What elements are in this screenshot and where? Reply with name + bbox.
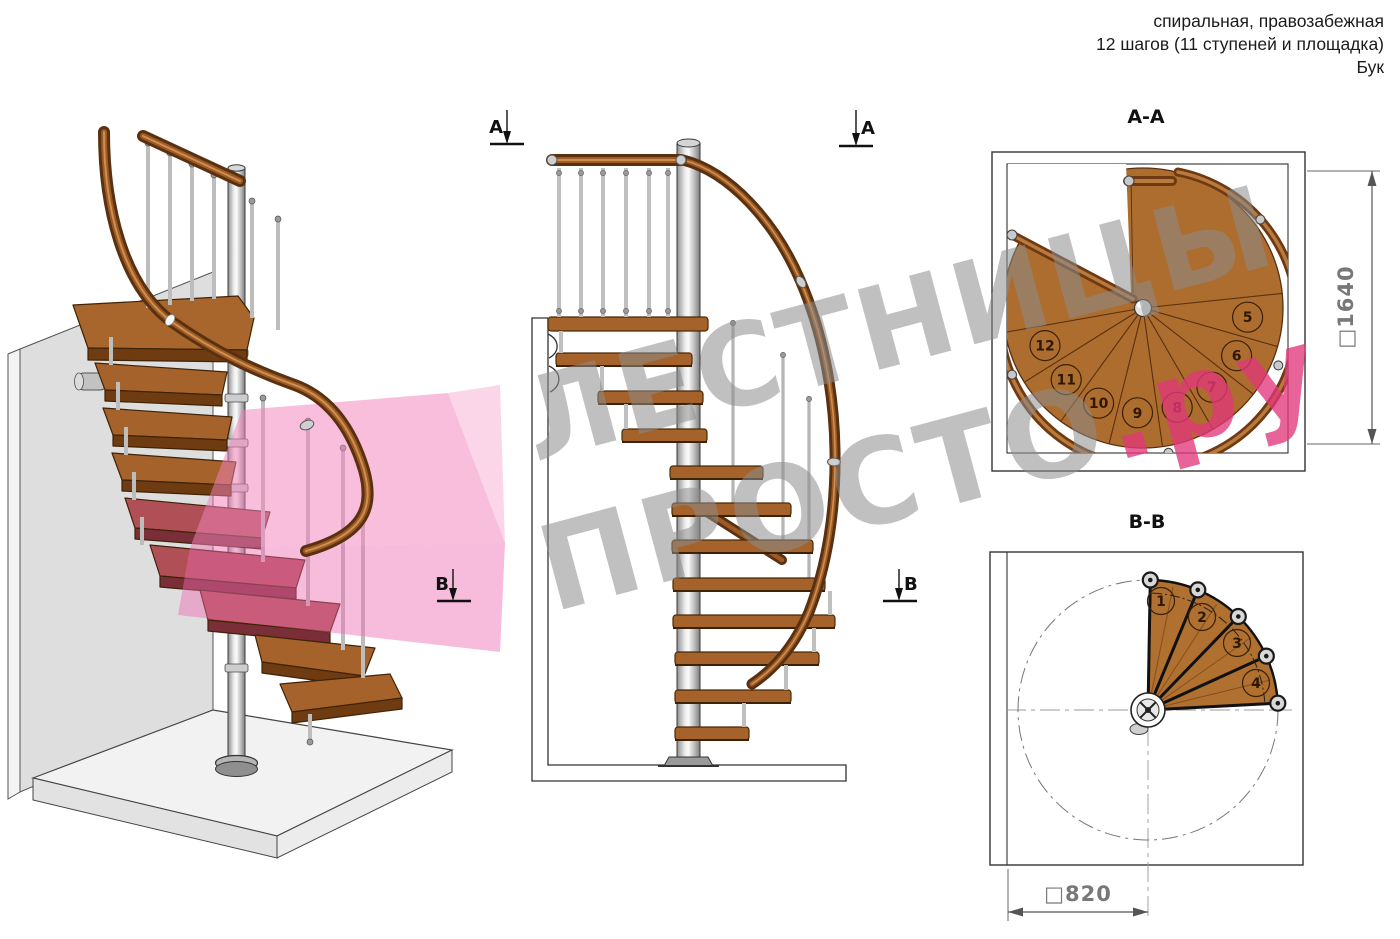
marker-letter: А (489, 117, 503, 138)
plan-aa-title: А-А (1127, 106, 1165, 128)
isometric-view (8, 132, 505, 858)
plan-bb-dimension: □820 (1008, 869, 1148, 921)
dimension-label-820: □820 (1044, 882, 1112, 906)
plan-view-bb: В-В (990, 511, 1303, 921)
marker-letter: В (435, 574, 449, 595)
plan-bb-title: В-В (1129, 511, 1166, 533)
technical-drawing: А А В В А-А (0, 0, 1400, 939)
drawing-sheet: спиральная, правозабежная 12 шагов (11 с… (0, 0, 1400, 939)
marker-letter: В (904, 574, 918, 595)
step-number: 3 (1232, 636, 1242, 652)
step-number: 4 (1251, 676, 1261, 692)
marker-letter: А (861, 118, 875, 139)
section-marker-a-right: А (839, 110, 875, 146)
section-marker-a-left: А (489, 110, 524, 144)
dimension-label-1640: □1640 (1334, 265, 1358, 348)
section-marker-b-right: В (883, 569, 918, 601)
plan-bb-center-pole (1130, 693, 1165, 735)
tread (280, 674, 402, 723)
step-number: 2 (1197, 610, 1207, 626)
step-number: 1 (1156, 594, 1166, 610)
watermark: ЛЕСТНИЦЫ ПРОСТО.ру (508, 160, 1337, 639)
